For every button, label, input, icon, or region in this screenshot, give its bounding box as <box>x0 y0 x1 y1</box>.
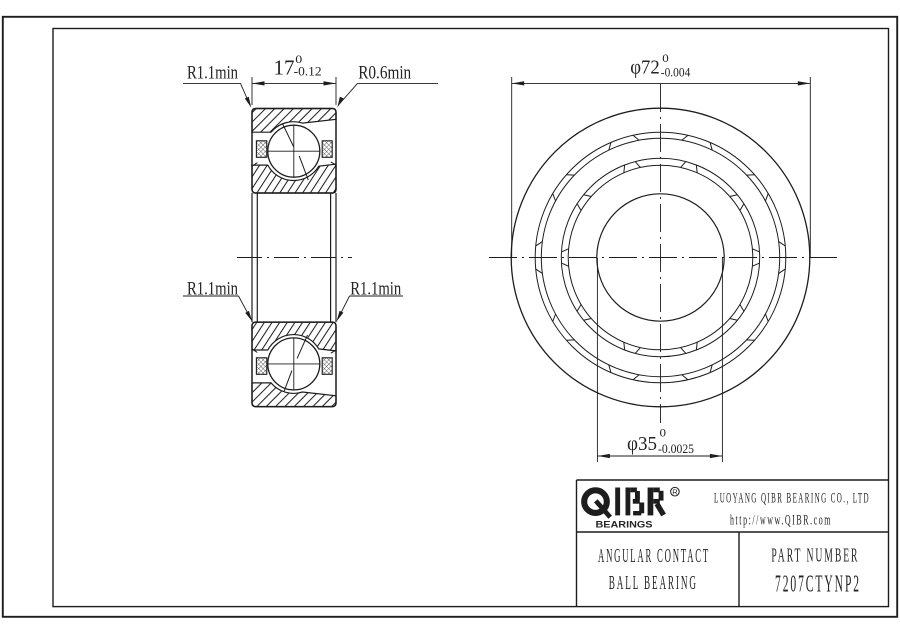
svg-text:PART NUMBER: PART NUMBER <box>771 545 859 567</box>
svg-text:R1.1min: R1.1min <box>187 62 238 83</box>
svg-text:-0.0025: -0.0025 <box>658 442 694 456</box>
svg-text:17: 17 <box>274 56 295 80</box>
svg-text:BEARINGS: BEARINGS <box>596 519 654 530</box>
svg-text:0: 0 <box>660 428 667 440</box>
svg-text:R0.6min: R0.6min <box>358 62 411 83</box>
svg-text:0: 0 <box>662 53 669 65</box>
svg-text:7207CTYNP2: 7207CTYNP2 <box>775 572 861 598</box>
svg-text:-0.004: -0.004 <box>661 66 691 80</box>
svg-text:R: R <box>672 487 678 496</box>
svg-text:http://www.QIBR.com: http://www.QIBR.com <box>730 513 832 529</box>
svg-text:-0.12: -0.12 <box>294 65 322 79</box>
svg-text:φ72: φ72 <box>630 56 660 78</box>
svg-text:ANGULAR CONTACT: ANGULAR CONTACT <box>598 546 710 567</box>
svg-text:LUOYANG QIBR BEARING CO., LTD: LUOYANG QIBR BEARING CO., LTD <box>714 491 870 507</box>
svg-text:BALL BEARING: BALL BEARING <box>609 573 698 594</box>
svg-text:φ35: φ35 <box>627 433 657 455</box>
